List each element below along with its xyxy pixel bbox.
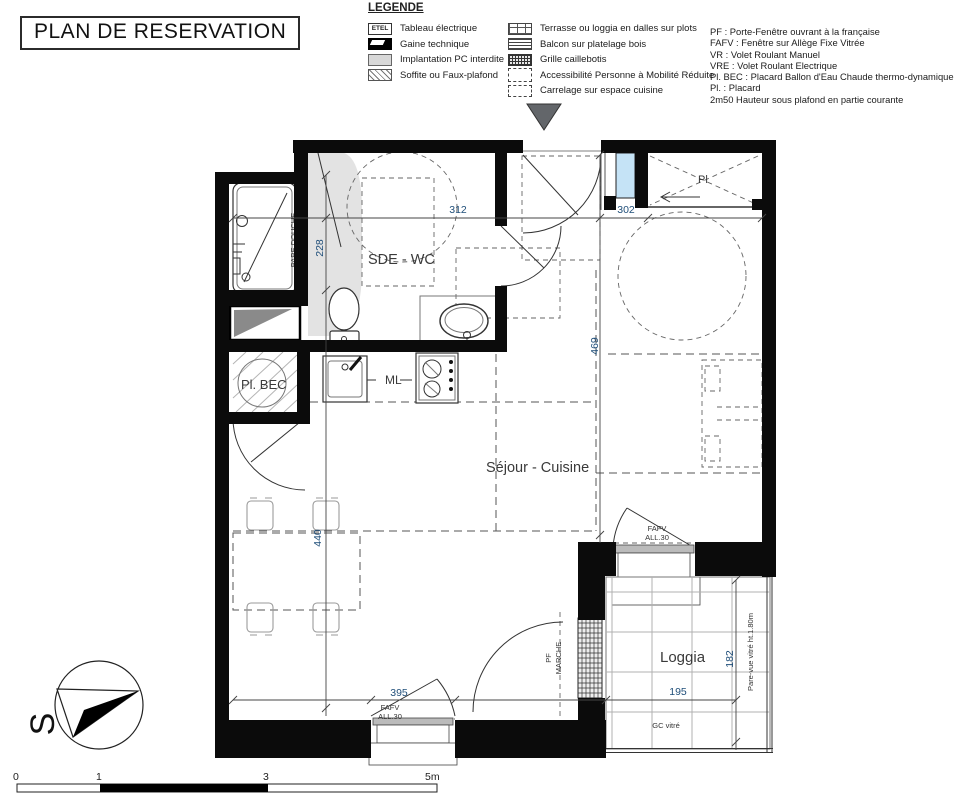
scale-tick-0: 0 [13, 771, 19, 783]
compass-south-label: S [24, 713, 62, 736]
scale-tick-1: 1 [96, 771, 102, 783]
all30-label-top: ALL.30 [645, 533, 669, 542]
bed-outline [702, 360, 762, 467]
loggia-label: Loggia [660, 649, 706, 666]
pl-label: Pl [698, 174, 708, 186]
cooktop [416, 353, 458, 403]
pare-vue-label: Pare-vue vitré ht.1.80m [746, 613, 755, 691]
floor-plan-drawing: PARE DOUCHE Pl. BEC [0, 0, 970, 800]
gaine-technique-box [230, 306, 300, 340]
scale-tick-5m: 5m [425, 771, 440, 783]
dim-182: 182 [724, 650, 736, 668]
grille-caillebotis [578, 618, 602, 698]
sejour-cuisine-label: Séjour - Cuisine [486, 460, 589, 476]
pf-label: PF [544, 653, 553, 663]
pl-bec-label: Pl. BEC [241, 377, 287, 392]
bathroom-door [501, 226, 561, 286]
dining-table-and-chairs [233, 498, 360, 635]
entry-door [523, 151, 601, 233]
entry-marker-icon [527, 104, 561, 130]
kitchen-sink [323, 356, 367, 402]
pl-closet [648, 192, 764, 207]
marche-label: MARCHE [554, 642, 563, 675]
dim-302: 302 [617, 204, 635, 216]
dim-440: 440 [312, 529, 324, 547]
dim-228: 228 [314, 239, 326, 257]
dim-469: 469 [589, 337, 601, 355]
fafv-label-bottom: FAFV [381, 703, 400, 712]
floor-plan-page: PLAN DE RESERVATION LEGENDE ETEL Tableau… [0, 0, 970, 800]
dim-312: 312 [449, 204, 467, 216]
gc-vitre-label: GC vitré [652, 721, 680, 730]
window-fafv-bottom [369, 679, 457, 765]
pl-bec-door [233, 418, 305, 490]
window-fafv-loggia [612, 508, 700, 605]
fafv-label-top: FAFV [648, 524, 667, 533]
dim-395: 395 [390, 687, 408, 699]
toilet [329, 288, 359, 348]
scale-tick-3: 3 [263, 771, 269, 783]
shower [233, 183, 296, 293]
sde-wc-label: SDE - WC [368, 252, 435, 268]
scale-bar [17, 784, 437, 792]
ml-label: ML [385, 373, 402, 387]
compass [55, 661, 143, 749]
dim-195: 195 [669, 686, 687, 698]
all30-label-bottom: ALL.30 [378, 712, 402, 721]
